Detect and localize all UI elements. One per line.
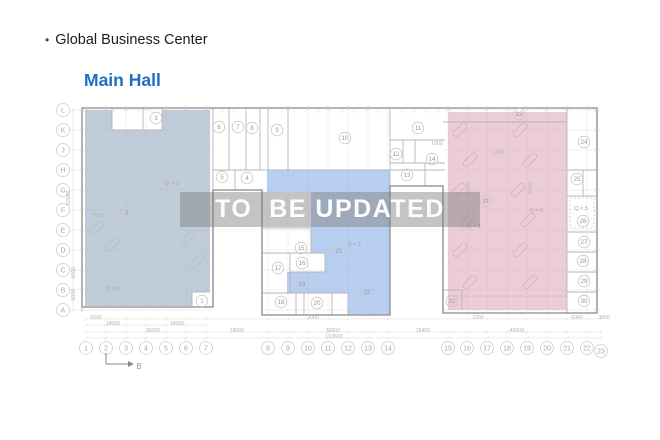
svg-text:J: J — [61, 147, 65, 154]
svg-text:18000: 18000 — [230, 328, 245, 334]
svg-text:6000: 6000 — [71, 289, 77, 301]
svg-text:11: 11 — [324, 345, 331, 352]
svg-text:7: 7 — [204, 345, 208, 352]
svg-text:153600: 153600 — [325, 334, 342, 340]
svg-text:6: 6 — [184, 345, 188, 352]
svg-text:2: 2 — [104, 345, 108, 352]
svg-text:7: 7 — [236, 124, 240, 131]
svg-text:3: 3 — [154, 115, 158, 122]
svg-text:6000: 6000 — [571, 315, 583, 321]
svg-text:6: 6 — [217, 124, 221, 131]
svg-text:30: 30 — [580, 298, 588, 305]
svg-text:24: 24 — [580, 139, 588, 146]
svg-text:3: 3 — [124, 345, 128, 352]
svg-text:31: 31 — [482, 198, 490, 205]
svg-text:G: G — [60, 187, 65, 194]
svg-text:1000: 1000 — [431, 141, 443, 147]
svg-text:18000: 18000 — [170, 321, 185, 327]
svg-text:13: 13 — [364, 345, 372, 352]
svg-text:Q = 3: Q = 3 — [529, 208, 542, 214]
svg-text:1000: 1000 — [472, 315, 484, 321]
svg-text:4: 4 — [144, 345, 148, 352]
floor-plan: 1234567891011121314151617181920212223242… — [0, 0, 660, 440]
svg-text:12: 12 — [344, 345, 352, 352]
svg-text:25: 25 — [573, 176, 581, 183]
svg-text:H: H — [60, 167, 65, 174]
svg-text:1300: 1300 — [492, 150, 504, 156]
svg-text:18400: 18400 — [416, 328, 431, 334]
svg-text:8: 8 — [266, 345, 270, 352]
svg-text:6000: 6000 — [90, 315, 102, 321]
svg-text:18: 18 — [277, 299, 285, 306]
svg-text:F: F — [61, 207, 65, 214]
svg-text:K: K — [61, 127, 66, 134]
svg-text:21: 21 — [563, 345, 571, 352]
svg-text:10: 10 — [341, 135, 349, 142]
svg-text:9: 9 — [286, 345, 290, 352]
svg-text:8: 8 — [250, 125, 254, 132]
svg-text:23: 23 — [597, 348, 605, 355]
svg-text:17: 17 — [274, 265, 282, 272]
svg-text:26: 26 — [579, 218, 587, 225]
svg-text:E: E — [61, 227, 66, 234]
svg-text:60000: 60000 — [66, 190, 72, 205]
svg-text:B: B — [61, 287, 66, 294]
svg-text:22: 22 — [363, 289, 371, 296]
svg-text:20: 20 — [313, 300, 321, 307]
svg-text:14: 14 — [428, 156, 436, 163]
svg-text:21: 21 — [335, 248, 343, 255]
svg-text:Q = 5: Q = 5 — [574, 206, 587, 212]
svg-text:Q = 3: Q = 3 — [165, 181, 178, 187]
svg-text:18000: 18000 — [106, 321, 121, 327]
svg-text:6000: 6000 — [528, 182, 534, 194]
svg-text:19: 19 — [523, 345, 531, 352]
svg-text:D: D — [60, 247, 65, 254]
svg-text:A: A — [61, 307, 66, 314]
svg-text:28: 28 — [579, 258, 587, 265]
svg-text:B: B — [136, 362, 141, 371]
svg-text:29: 29 — [580, 278, 588, 285]
watermark-banner: TO BE UPDATED — [180, 192, 480, 227]
svg-text:23: 23 — [515, 111, 523, 118]
svg-text:18: 18 — [503, 345, 511, 352]
svg-text:2000: 2000 — [307, 315, 319, 321]
svg-text:1: 1 — [84, 345, 88, 352]
svg-text:16: 16 — [463, 345, 471, 352]
svg-text:36000: 36000 — [146, 328, 161, 334]
svg-text:15: 15 — [444, 345, 452, 352]
svg-text:13: 13 — [403, 172, 411, 179]
svg-text:27: 27 — [580, 239, 588, 246]
svg-text:5: 5 — [220, 174, 224, 181]
svg-text:10: 10 — [304, 345, 312, 352]
svg-text:45000: 45000 — [510, 328, 525, 334]
svg-text:20: 20 — [543, 345, 551, 352]
svg-text:C: C — [60, 267, 65, 274]
svg-text:9: 9 — [275, 127, 279, 134]
svg-text:2: 2 — [125, 210, 129, 217]
svg-text:L: L — [61, 107, 65, 114]
svg-text:12: 12 — [392, 151, 400, 158]
watermark-text: TO BE UPDATED — [215, 195, 445, 224]
svg-text:17: 17 — [483, 345, 491, 352]
app-screen: • Global Business Center Main Hall 12345… — [0, 0, 660, 440]
svg-text:3000: 3000 — [598, 315, 610, 321]
svg-text:1: 1 — [200, 298, 204, 305]
svg-text:6000: 6000 — [71, 267, 77, 279]
svg-text:Q = 3: Q = 3 — [347, 242, 360, 248]
svg-text:14: 14 — [384, 345, 392, 352]
svg-text:5: 5 — [164, 345, 168, 352]
svg-text:Q = 3: Q = 3 — [106, 286, 119, 292]
svg-text:22: 22 — [583, 345, 591, 352]
svg-text:32: 32 — [448, 298, 456, 305]
svg-text:16: 16 — [298, 260, 306, 267]
svg-text:4: 4 — [245, 175, 249, 182]
section-arrow-icon — [128, 361, 134, 367]
svg-text:19: 19 — [298, 281, 306, 288]
svg-text:15: 15 — [297, 245, 305, 252]
svg-text:2000: 2000 — [91, 213, 103, 219]
svg-text:11: 11 — [415, 125, 422, 132]
